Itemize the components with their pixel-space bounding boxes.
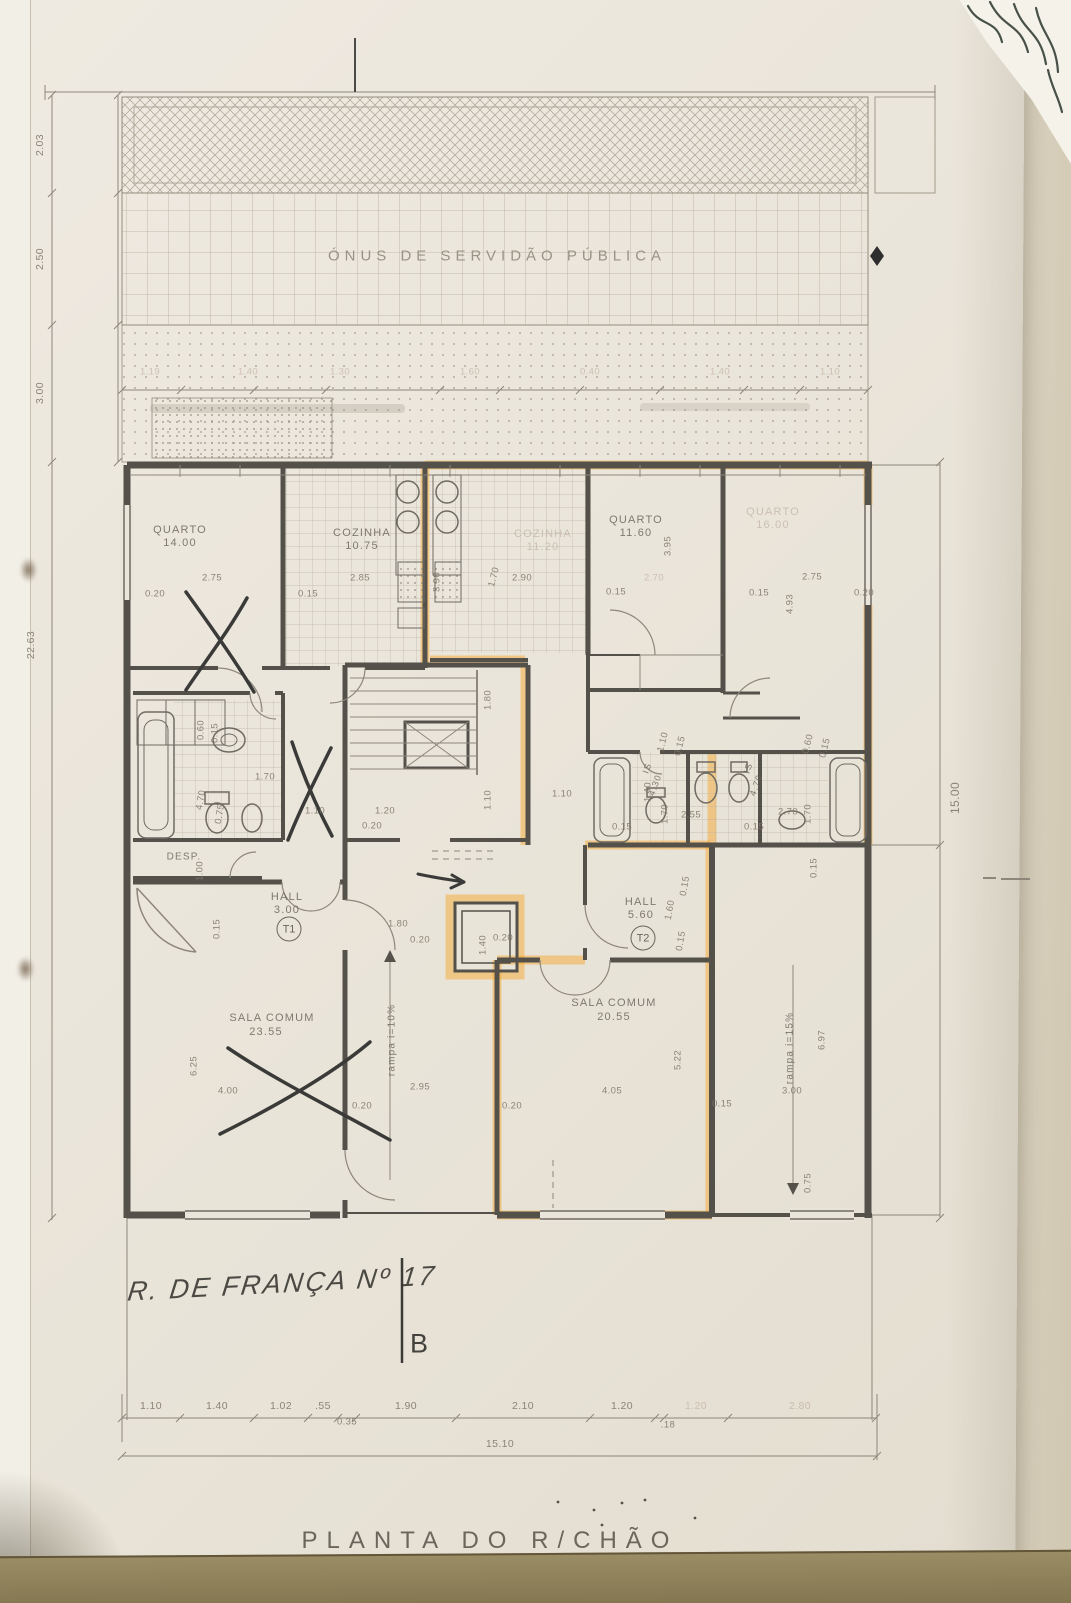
table-edge (0, 1550, 1071, 1603)
photographed-floorplan: ÓNUS DE SERVIDÃO PÚBLICAQUARTO14.00COZIN… (0, 0, 1071, 1603)
bathtub (830, 758, 866, 842)
tiled-floors (174, 467, 828, 843)
handwritten-arrow (418, 874, 464, 888)
ramp-arrows (384, 950, 799, 1195)
boundary-marker-icon (870, 246, 884, 266)
setback-bands (122, 97, 935, 462)
corner-scribbles (968, 2, 1062, 112)
kitchen-sink (398, 562, 424, 602)
bathtub (594, 758, 630, 842)
handwritten-x-marks (186, 592, 464, 1140)
bathtub (138, 712, 174, 838)
floorplan-linework (0, 0, 1071, 1603)
